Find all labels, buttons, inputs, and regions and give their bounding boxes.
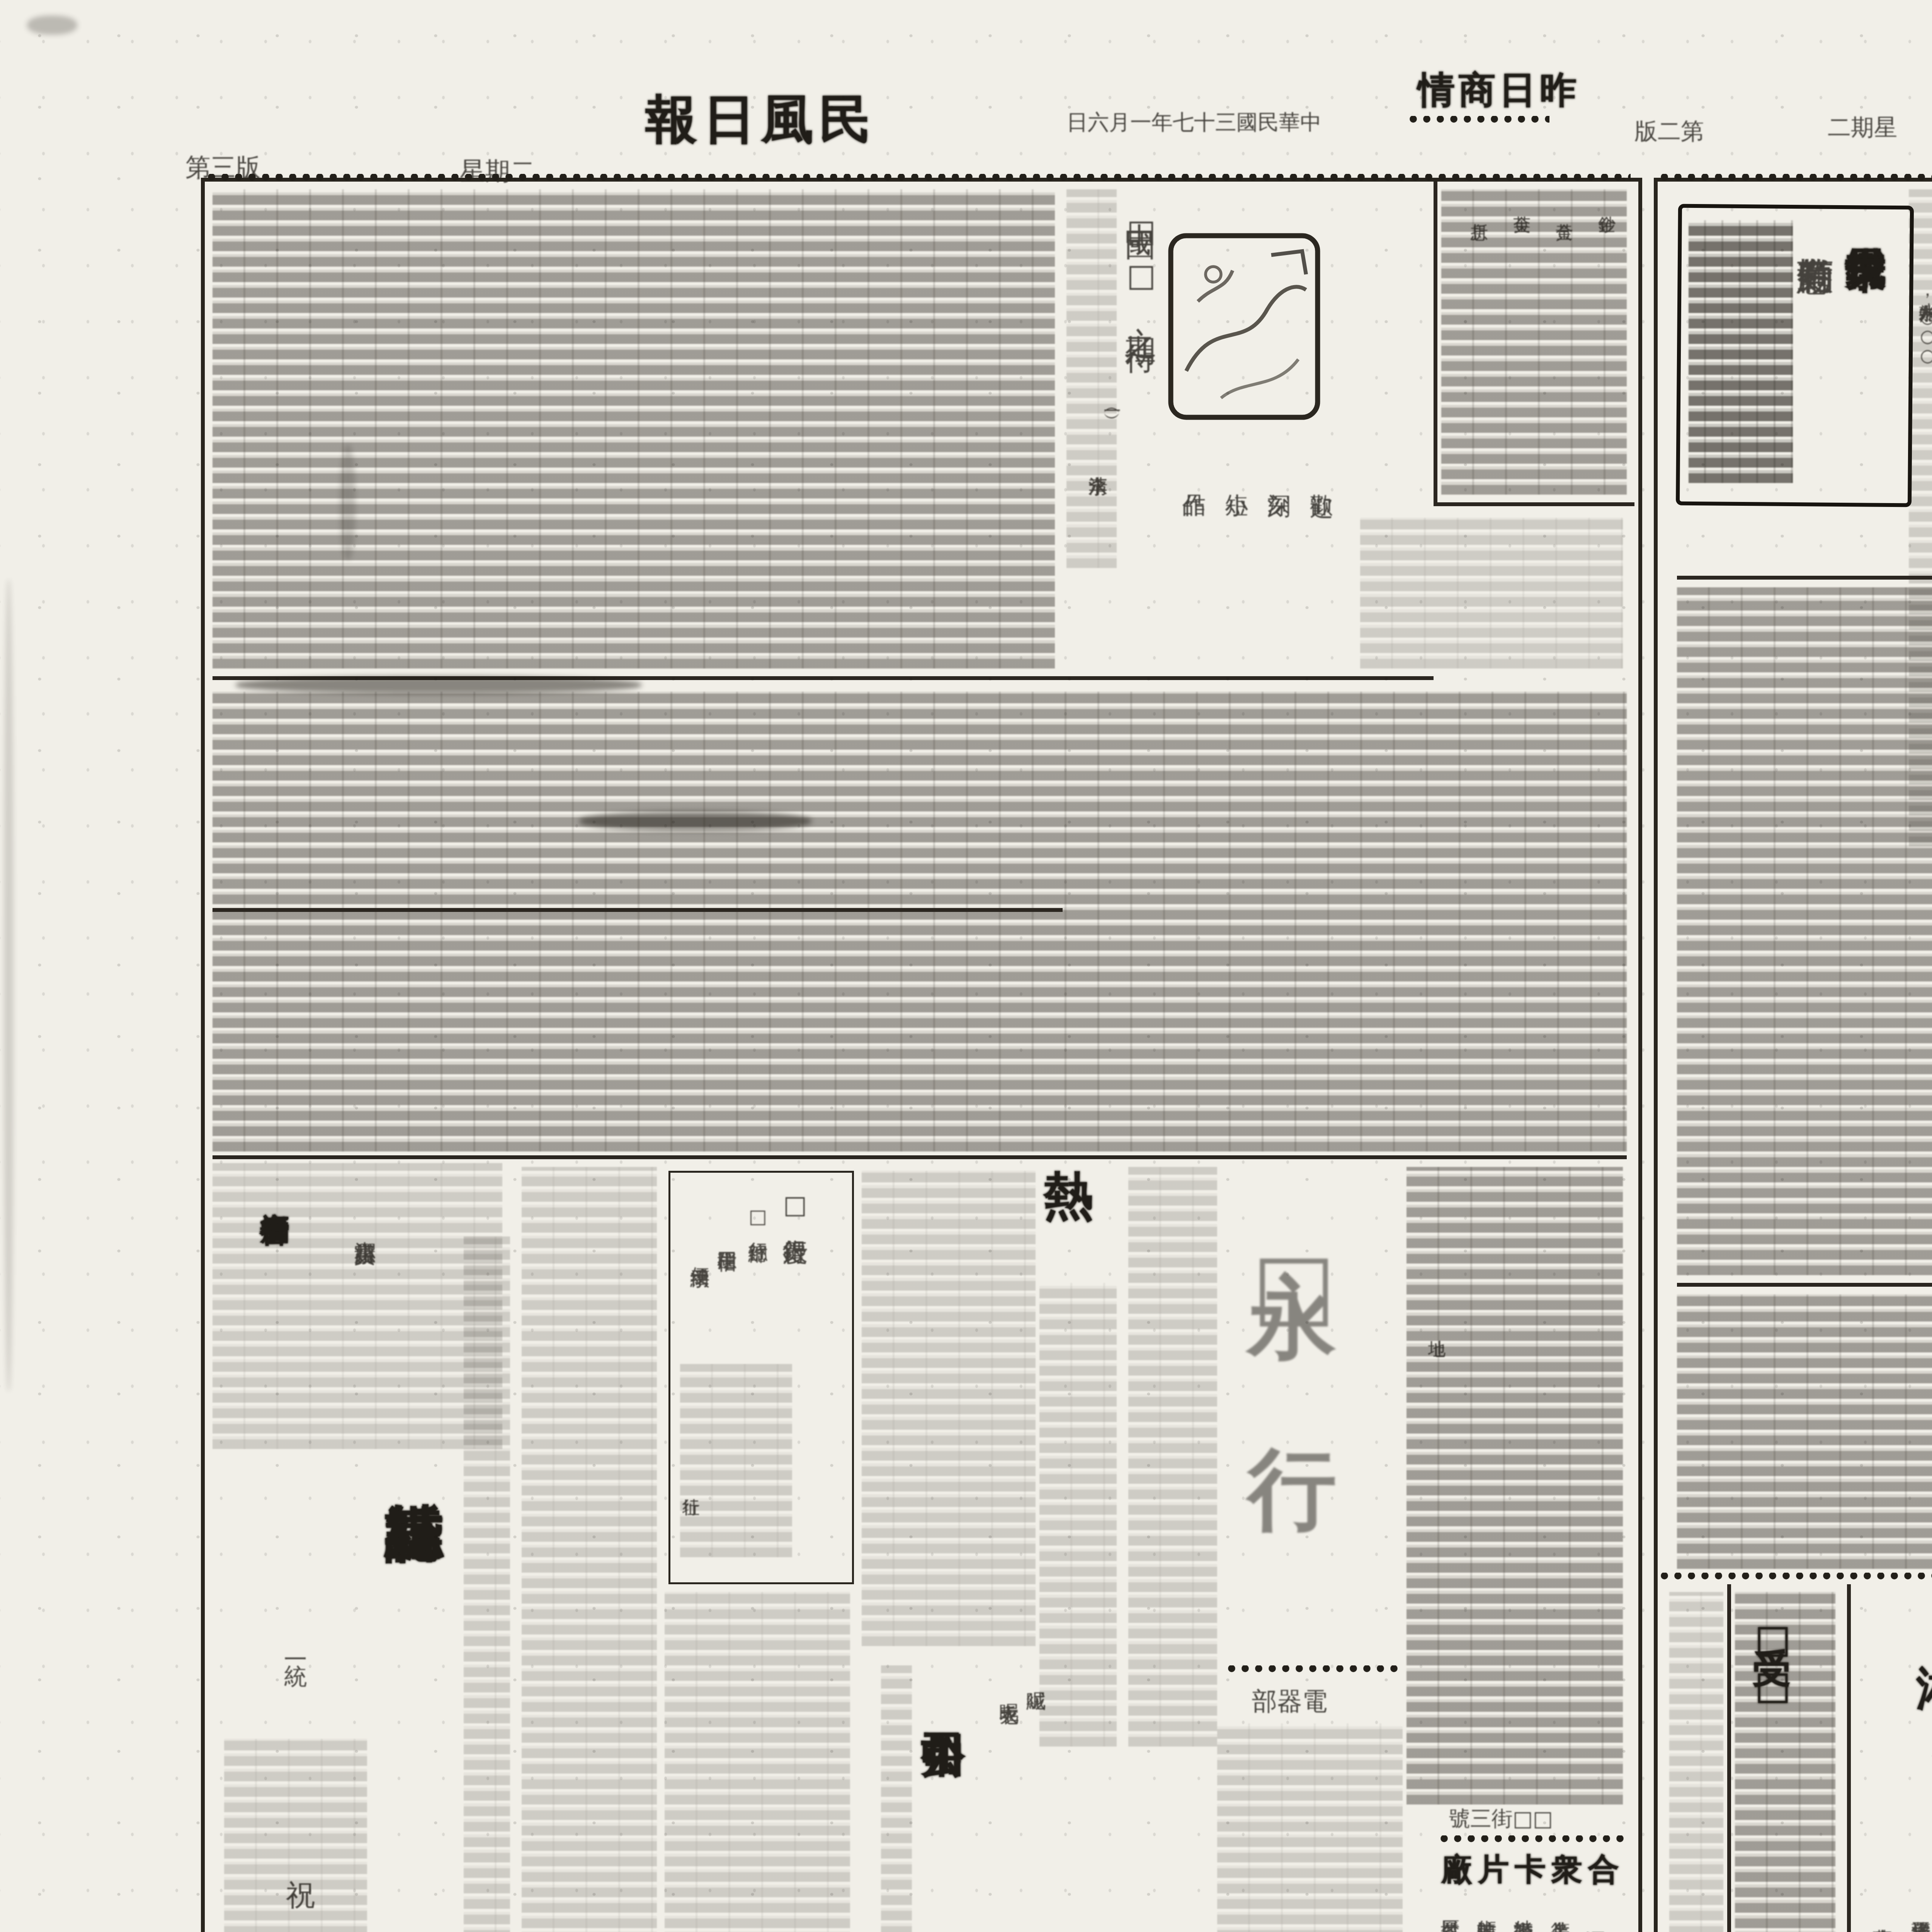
illegible-ad-text xyxy=(1039,1283,1117,1747)
bank-name: □慶銀行 xyxy=(781,1190,808,1219)
market-box-rule xyxy=(1434,182,1437,506)
illegible-ads xyxy=(1406,1167,1623,1804)
illegible-ads xyxy=(862,1171,1036,1646)
page-number-right: 版二第 xyxy=(1634,116,1704,149)
section-rule xyxy=(1677,576,1932,579)
card-items: 上等名片 結婚證書 美術請帖 各式日曆 xyxy=(1445,1905,1573,1932)
hot-ad-char: 熱 xyxy=(1043,1163,1094,1231)
illegible-ad-text xyxy=(680,1364,792,1557)
essay-title: 中國□□之期待 xyxy=(1124,197,1158,325)
rice-quote-1: 中熟米八九，○○○ xyxy=(1917,290,1932,365)
solicit-word: 短小 xyxy=(1219,475,1252,564)
ink-smear xyxy=(236,676,641,694)
yong-store-name: 永□行 xyxy=(1244,1194,1340,1414)
masthead-left: 報日風民 xyxy=(645,85,877,155)
illegible-ad-text xyxy=(213,1163,502,1449)
card-item: 各式日曆 xyxy=(1435,1905,1463,1932)
market-quotes-illegible xyxy=(1441,189,1627,495)
ink-smear xyxy=(580,811,811,831)
illegible-ad-text xyxy=(464,1236,510,1932)
market-title-underline xyxy=(1406,116,1549,124)
scan-mark xyxy=(27,15,77,35)
bank-branch: □部總行 xyxy=(746,1206,767,1227)
card-item: 結婚證書 xyxy=(1509,1905,1536,1932)
page2-top-border xyxy=(1658,174,1932,182)
woodcut-illustration xyxy=(1167,232,1321,421)
solicit-word: 歡迎 xyxy=(1304,475,1337,564)
scan-mark xyxy=(340,444,355,560)
receive-ad-title: 受□□ xyxy=(1750,1615,1792,1708)
illegible-ads xyxy=(522,1167,657,1932)
newspaper-sheet: 第三版 星期二 報日風民 日六月一年七十三國民華中 情商日昨 版二第 二期星 報… xyxy=(0,0,1932,1932)
market-column-title: 情商日昨 xyxy=(1418,66,1580,116)
page3-top-border xyxy=(205,174,1631,182)
illegible-ad-text xyxy=(224,1739,367,1932)
illegible-articles xyxy=(213,692,1627,1151)
illegible-ad-text xyxy=(1669,1592,1723,1932)
card-factory-name: 廠片卡衆合 xyxy=(1441,1851,1625,1891)
illegible-column xyxy=(1360,518,1623,668)
weekday-right: 二期星 xyxy=(1828,112,1897,145)
section-rule xyxy=(1677,1283,1932,1286)
dateline-left: 日六月一年七十三國民華中 xyxy=(1066,108,1321,137)
market-box-bottom-rule xyxy=(1434,502,1634,505)
card-factory-address: 號三街□□ xyxy=(1449,1804,1553,1833)
card-item: 上等名片 xyxy=(1546,1905,1573,1932)
ad-rule xyxy=(1727,1584,1730,1932)
illegible-ad-text xyxy=(881,1665,912,1932)
section-rule xyxy=(213,1155,1627,1158)
yong-department: 部器電 xyxy=(1252,1685,1327,1719)
medicine-ad-left-rule xyxy=(1847,1584,1850,1932)
solicit-word: 作品 xyxy=(1177,475,1209,564)
illegible-ad-text xyxy=(1217,1723,1403,1932)
solicit-word: 深刻 xyxy=(1262,475,1294,564)
section-rule xyxy=(213,908,1063,911)
illegible-articles xyxy=(213,189,1055,668)
scan-streak xyxy=(4,580,14,1391)
essay-solicitation: 歡迎 深刻 短小 作品 xyxy=(1182,475,1337,564)
mayor-body-illegible xyxy=(1689,220,1793,483)
illegible-articles xyxy=(1677,1294,1932,1569)
illegible-column xyxy=(1066,189,1117,568)
illegible-ads xyxy=(1128,1167,1217,1747)
ads-top-rule xyxy=(1658,1573,1932,1580)
newspaper-scan: 第三版 星期二 報日風民 日六月一年七十三國民華中 情商日昨 版二第 二期星 報… xyxy=(0,0,1932,1932)
illegible-articles xyxy=(1677,587,1932,1275)
medicine-product-name: 淋滅尿 xyxy=(1917,1658,1932,1719)
card-item: 美術請帖 xyxy=(1472,1905,1499,1932)
yong-divider xyxy=(1225,1665,1403,1673)
illegible-ad-text xyxy=(665,1592,850,1932)
card-ad-top-rule xyxy=(1437,1835,1627,1843)
